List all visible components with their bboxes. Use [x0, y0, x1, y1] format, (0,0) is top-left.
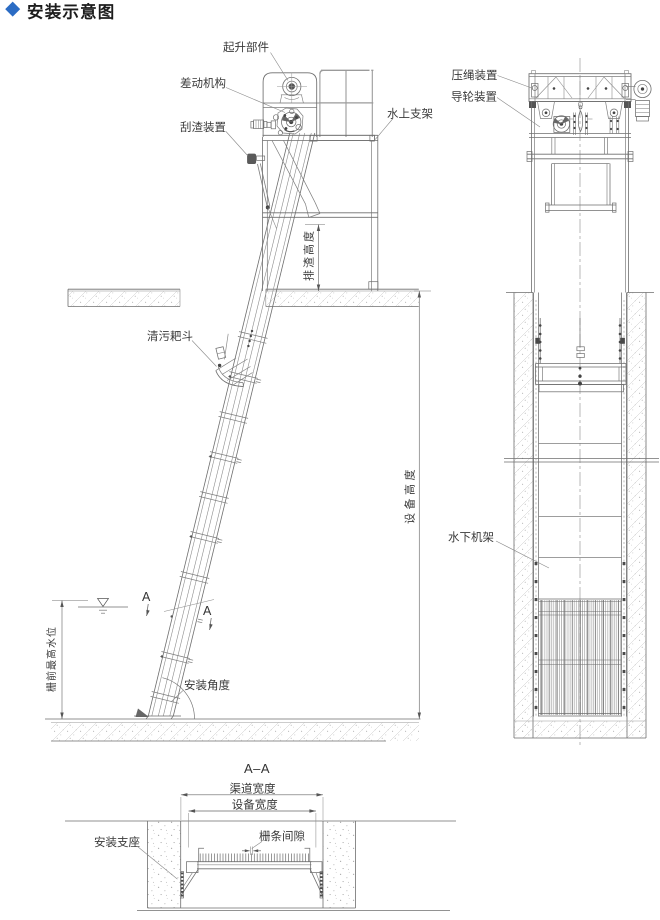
svg-text:栅前最高水位: 栅前最高水位: [45, 626, 58, 692]
svg-text:安装示意图: 安装示意图: [27, 2, 116, 22]
svg-text:A–A: A–A: [244, 761, 270, 776]
svg-text:起升部件: 起升部件: [223, 40, 269, 54]
svg-text:水下机架: 水下机架: [448, 530, 494, 544]
svg-text:刮渣装置: 刮渣装置: [180, 120, 226, 134]
svg-text:安装角度: 安装角度: [184, 678, 230, 692]
svg-text:差动机构: 差动机构: [180, 76, 226, 90]
svg-text:设备高度: 设备高度: [403, 466, 417, 524]
svg-text:栅条间隙: 栅条间隙: [259, 829, 305, 843]
svg-text:安装支座: 安装支座: [94, 835, 140, 849]
svg-text:排渣高度: 排渣高度: [302, 229, 316, 281]
svg-text:A: A: [203, 604, 212, 618]
svg-text:A: A: [142, 590, 151, 604]
svg-text:设备宽度: 设备宽度: [232, 798, 278, 812]
svg-text:清污耙斗: 清污耙斗: [147, 330, 193, 343]
svg-text:水上支架: 水上支架: [387, 108, 433, 121]
svg-text:渠道宽度: 渠道宽度: [230, 782, 276, 796]
svg-text:压绳装置: 压绳装置: [452, 68, 498, 82]
svg-text:导轮装置: 导轮装置: [451, 90, 497, 104]
